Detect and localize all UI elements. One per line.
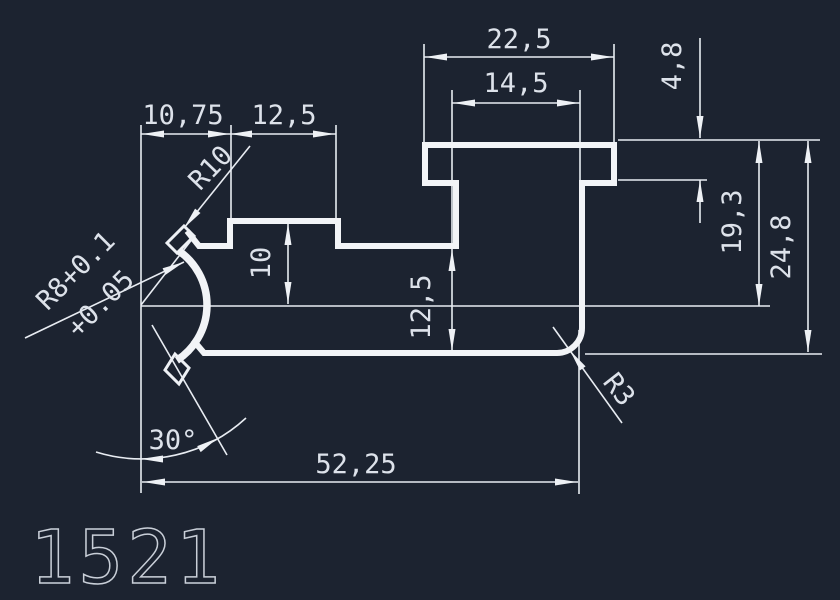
part-number: 1521 bbox=[30, 515, 224, 600]
angle-label-30deg: 30° bbox=[149, 425, 198, 456]
dim-label-left-b: 12,5 bbox=[251, 100, 316, 131]
dim-label-right-outer: 24,8 bbox=[766, 214, 797, 279]
dim-label-web: 12,5 bbox=[406, 274, 437, 339]
dim-label-top-inner: 14,5 bbox=[483, 68, 548, 99]
dim-label-hat-height: 4,8 bbox=[657, 42, 688, 91]
cad-canvas: 22,5 14,5 4,8 10,75 12,5 R10 10 12,5 19,… bbox=[0, 0, 840, 600]
dim-label-top-outer: 22,5 bbox=[486, 24, 551, 55]
dim-label-right-inner: 19,3 bbox=[717, 189, 748, 254]
dim-label-overall: 52,25 bbox=[315, 449, 396, 480]
dim-label-notch: 10 bbox=[246, 247, 277, 280]
dim-label-left-a: 10,75 bbox=[142, 100, 223, 131]
technical-drawing: 22,5 14,5 4,8 10,75 12,5 R10 10 12,5 19,… bbox=[0, 0, 840, 600]
